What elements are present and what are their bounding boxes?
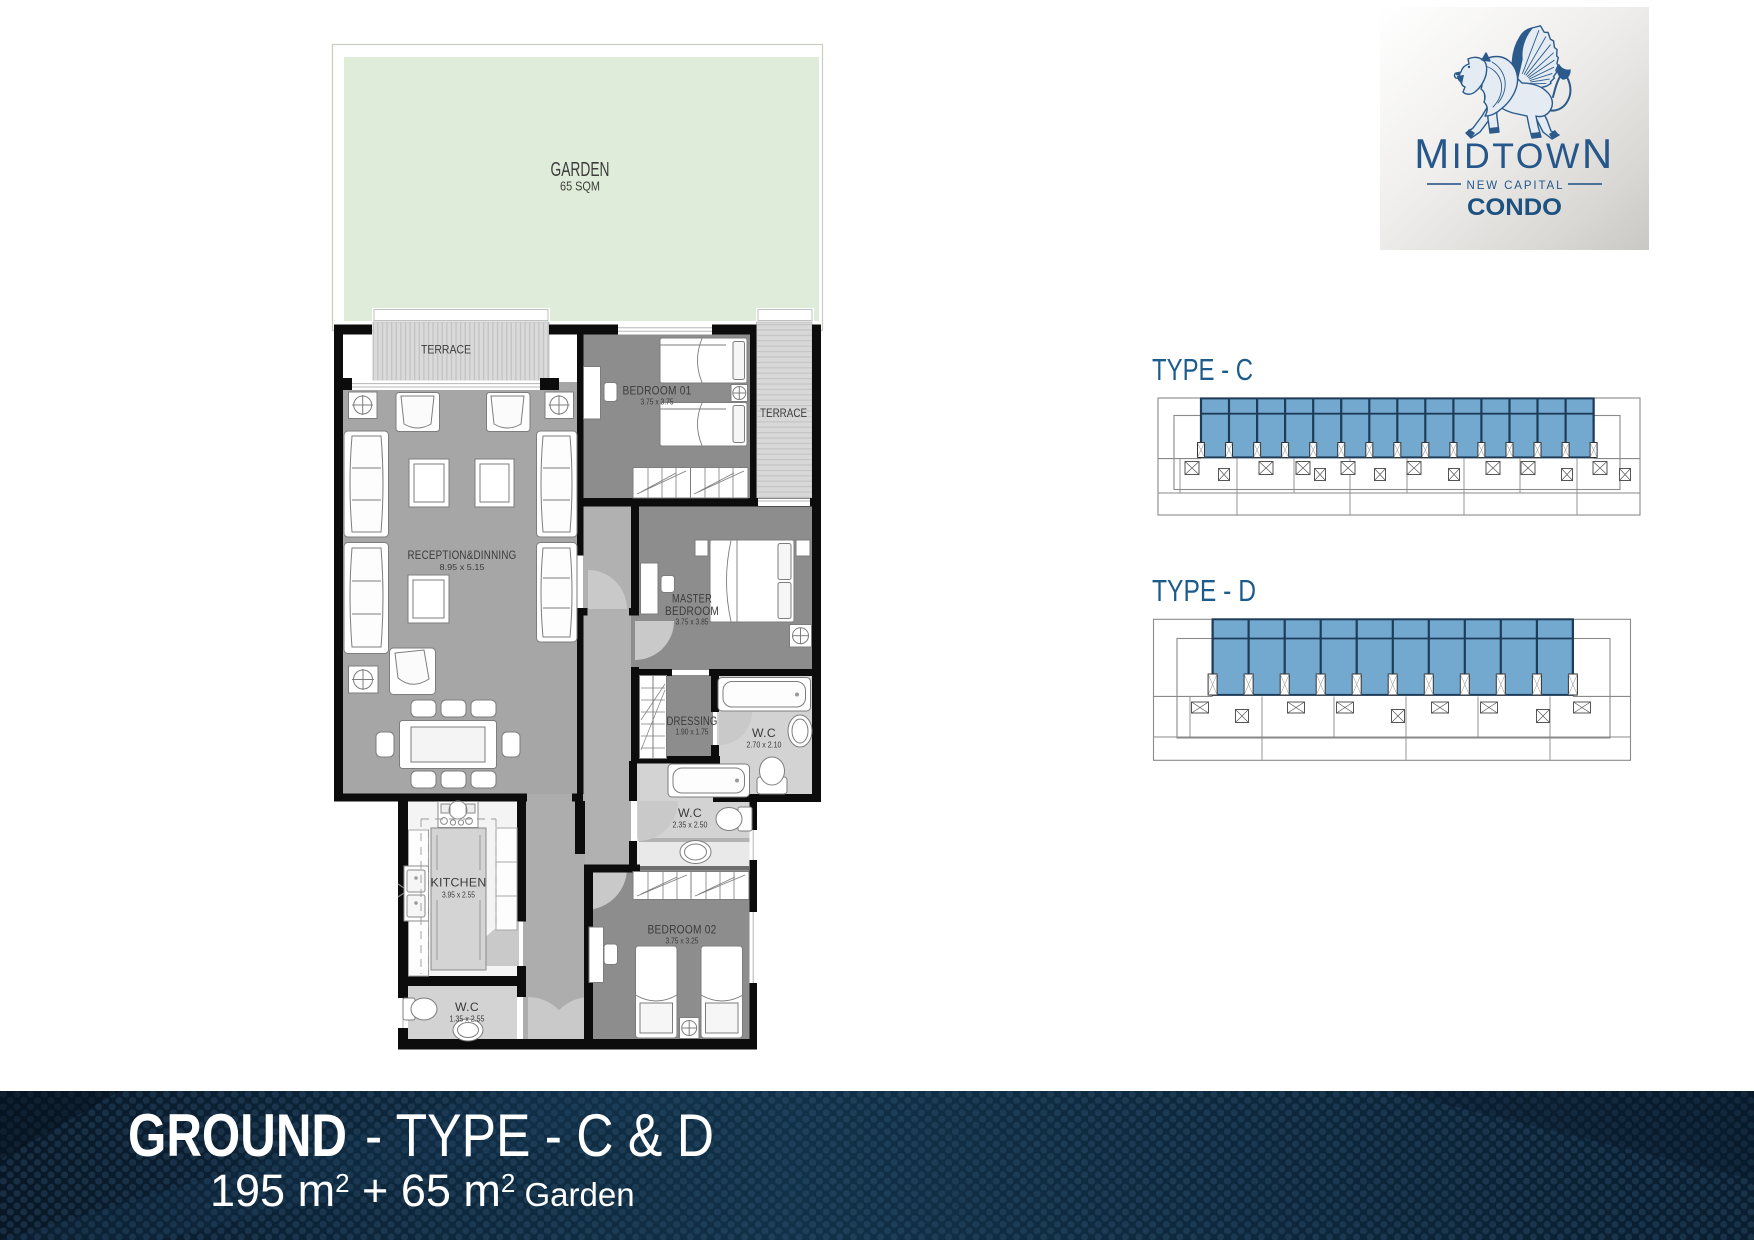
svg-text:BEDROOM: BEDROOM (665, 604, 719, 618)
svg-text:3.75 x 3.85: 3.75 x 3.85 (676, 618, 709, 627)
svg-text:W.C: W.C (752, 726, 776, 740)
svg-text:2.70 x 2.10: 2.70 x 2.10 (747, 741, 782, 750)
svg-text:CONDO: CONDO (1467, 194, 1562, 221)
svg-text:2.35 x 2.50: 2.35 x 2.50 (673, 821, 708, 830)
svg-text:MIDTOWN: MIDTOWN (1414, 130, 1615, 177)
svg-text:1.35 x 2.55: 1.35 x 2.55 (450, 1015, 485, 1024)
svg-text:W.C: W.C (455, 1000, 479, 1014)
svg-text:TERRACE: TERRACE (421, 345, 471, 357)
svg-text:NEW CAPITAL: NEW CAPITAL (1467, 180, 1564, 192)
svg-text:TERRACE: TERRACE (760, 408, 807, 420)
svg-text:3.95 x 2.55: 3.95 x 2.55 (442, 891, 475, 900)
svg-text:BEDROOM 01: BEDROOM 01 (623, 384, 692, 398)
svg-text:GROUND: GROUND (128, 1102, 347, 1169)
svg-text:DRESSING: DRESSING (667, 714, 718, 728)
svg-text:65 SQM: 65 SQM (560, 179, 600, 194)
svg-text:- TYPE - C & D: - TYPE - C & D (365, 1102, 714, 1169)
svg-text:W.C: W.C (678, 806, 702, 820)
svg-text:RECEPTION&DINNING: RECEPTION&DINNING (408, 548, 517, 562)
svg-text:3.75 x 3.25: 3.75 x 3.25 (666, 937, 699, 946)
svg-text:KITCHEN: KITCHEN (431, 876, 487, 890)
svg-text:1.90 x 1.75: 1.90 x 1.75 (676, 728, 709, 737)
svg-text:3.75 x 3.75: 3.75 x 3.75 (641, 398, 674, 407)
svg-text:TYPE - C: TYPE - C (1152, 352, 1253, 387)
svg-text:BEDROOM 02: BEDROOM 02 (648, 923, 717, 937)
svg-text:TYPE - D: TYPE - D (1152, 573, 1256, 608)
svg-text:8.95 x 5.15: 8.95 x 5.15 (440, 562, 485, 572)
